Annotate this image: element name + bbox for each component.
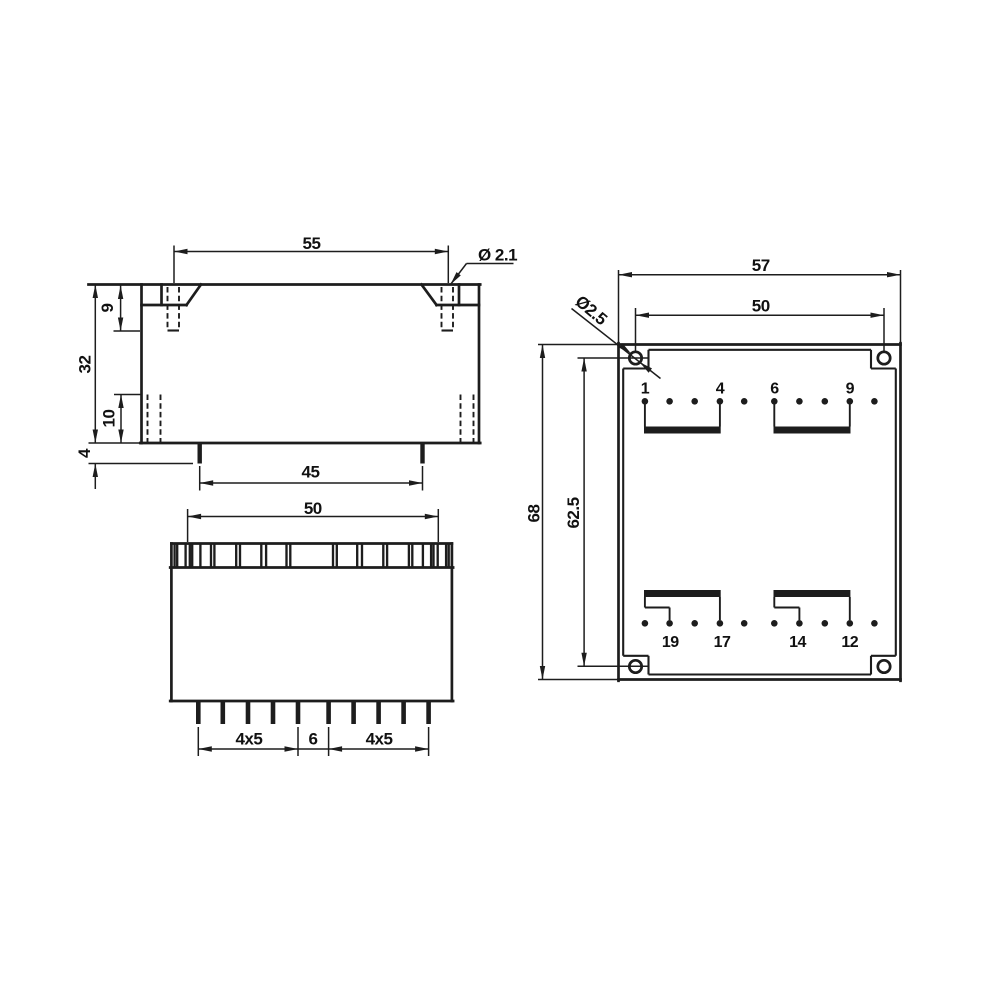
svg-text:50: 50: [752, 297, 770, 316]
svg-text:17: 17: [714, 634, 731, 651]
svg-text:9: 9: [98, 303, 117, 312]
svg-text:12: 12: [841, 634, 858, 651]
svg-text:62.5: 62.5: [564, 497, 583, 528]
svg-text:6: 6: [770, 381, 779, 398]
svg-text:57: 57: [752, 256, 770, 275]
svg-text:19: 19: [662, 634, 679, 651]
svg-text:14: 14: [789, 634, 806, 651]
svg-text:68: 68: [525, 505, 544, 523]
svg-text:4x5: 4x5: [235, 730, 262, 749]
svg-text:4x5: 4x5: [366, 730, 393, 749]
svg-text:55: 55: [303, 234, 321, 253]
svg-text:4: 4: [716, 381, 725, 398]
svg-text:45: 45: [302, 463, 320, 482]
svg-text:32: 32: [76, 356, 95, 374]
svg-text:9: 9: [846, 381, 855, 398]
svg-text:4: 4: [75, 448, 94, 458]
svg-text:10: 10: [100, 410, 119, 428]
svg-text:50: 50: [304, 499, 322, 518]
svg-text:Ø 2.1: Ø 2.1: [478, 246, 517, 265]
svg-text:6: 6: [309, 730, 318, 749]
svg-text:1: 1: [641, 381, 650, 398]
